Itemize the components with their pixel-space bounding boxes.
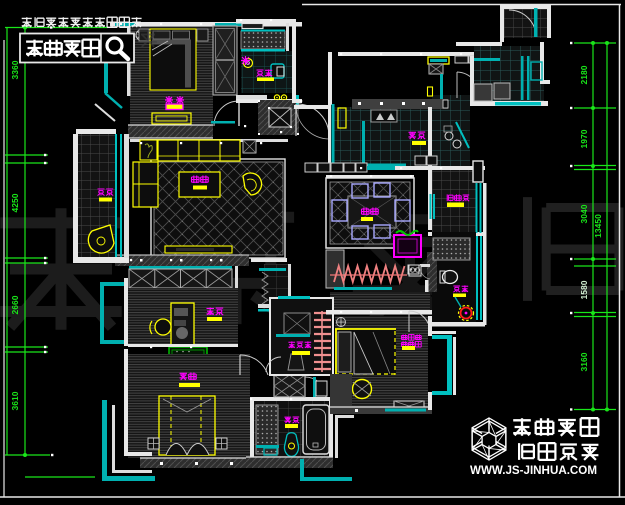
svg-text:WWW.JS-JINHUA.COM: WWW.JS-JINHUA.COM xyxy=(470,465,597,477)
svg-text:3610: 3610 xyxy=(10,391,20,410)
svg-text:2180: 2180 xyxy=(579,65,589,84)
svg-text:4250: 4250 xyxy=(10,193,20,212)
svg-text:1970: 1970 xyxy=(579,129,589,148)
svg-text:1580: 1580 xyxy=(579,280,589,299)
svg-text:13450: 13450 xyxy=(593,214,603,238)
svg-text:3040: 3040 xyxy=(579,204,589,223)
svg-text:2660: 2660 xyxy=(10,295,20,314)
svg-text:3360: 3360 xyxy=(10,60,20,79)
svg-text:3160: 3160 xyxy=(579,352,589,371)
